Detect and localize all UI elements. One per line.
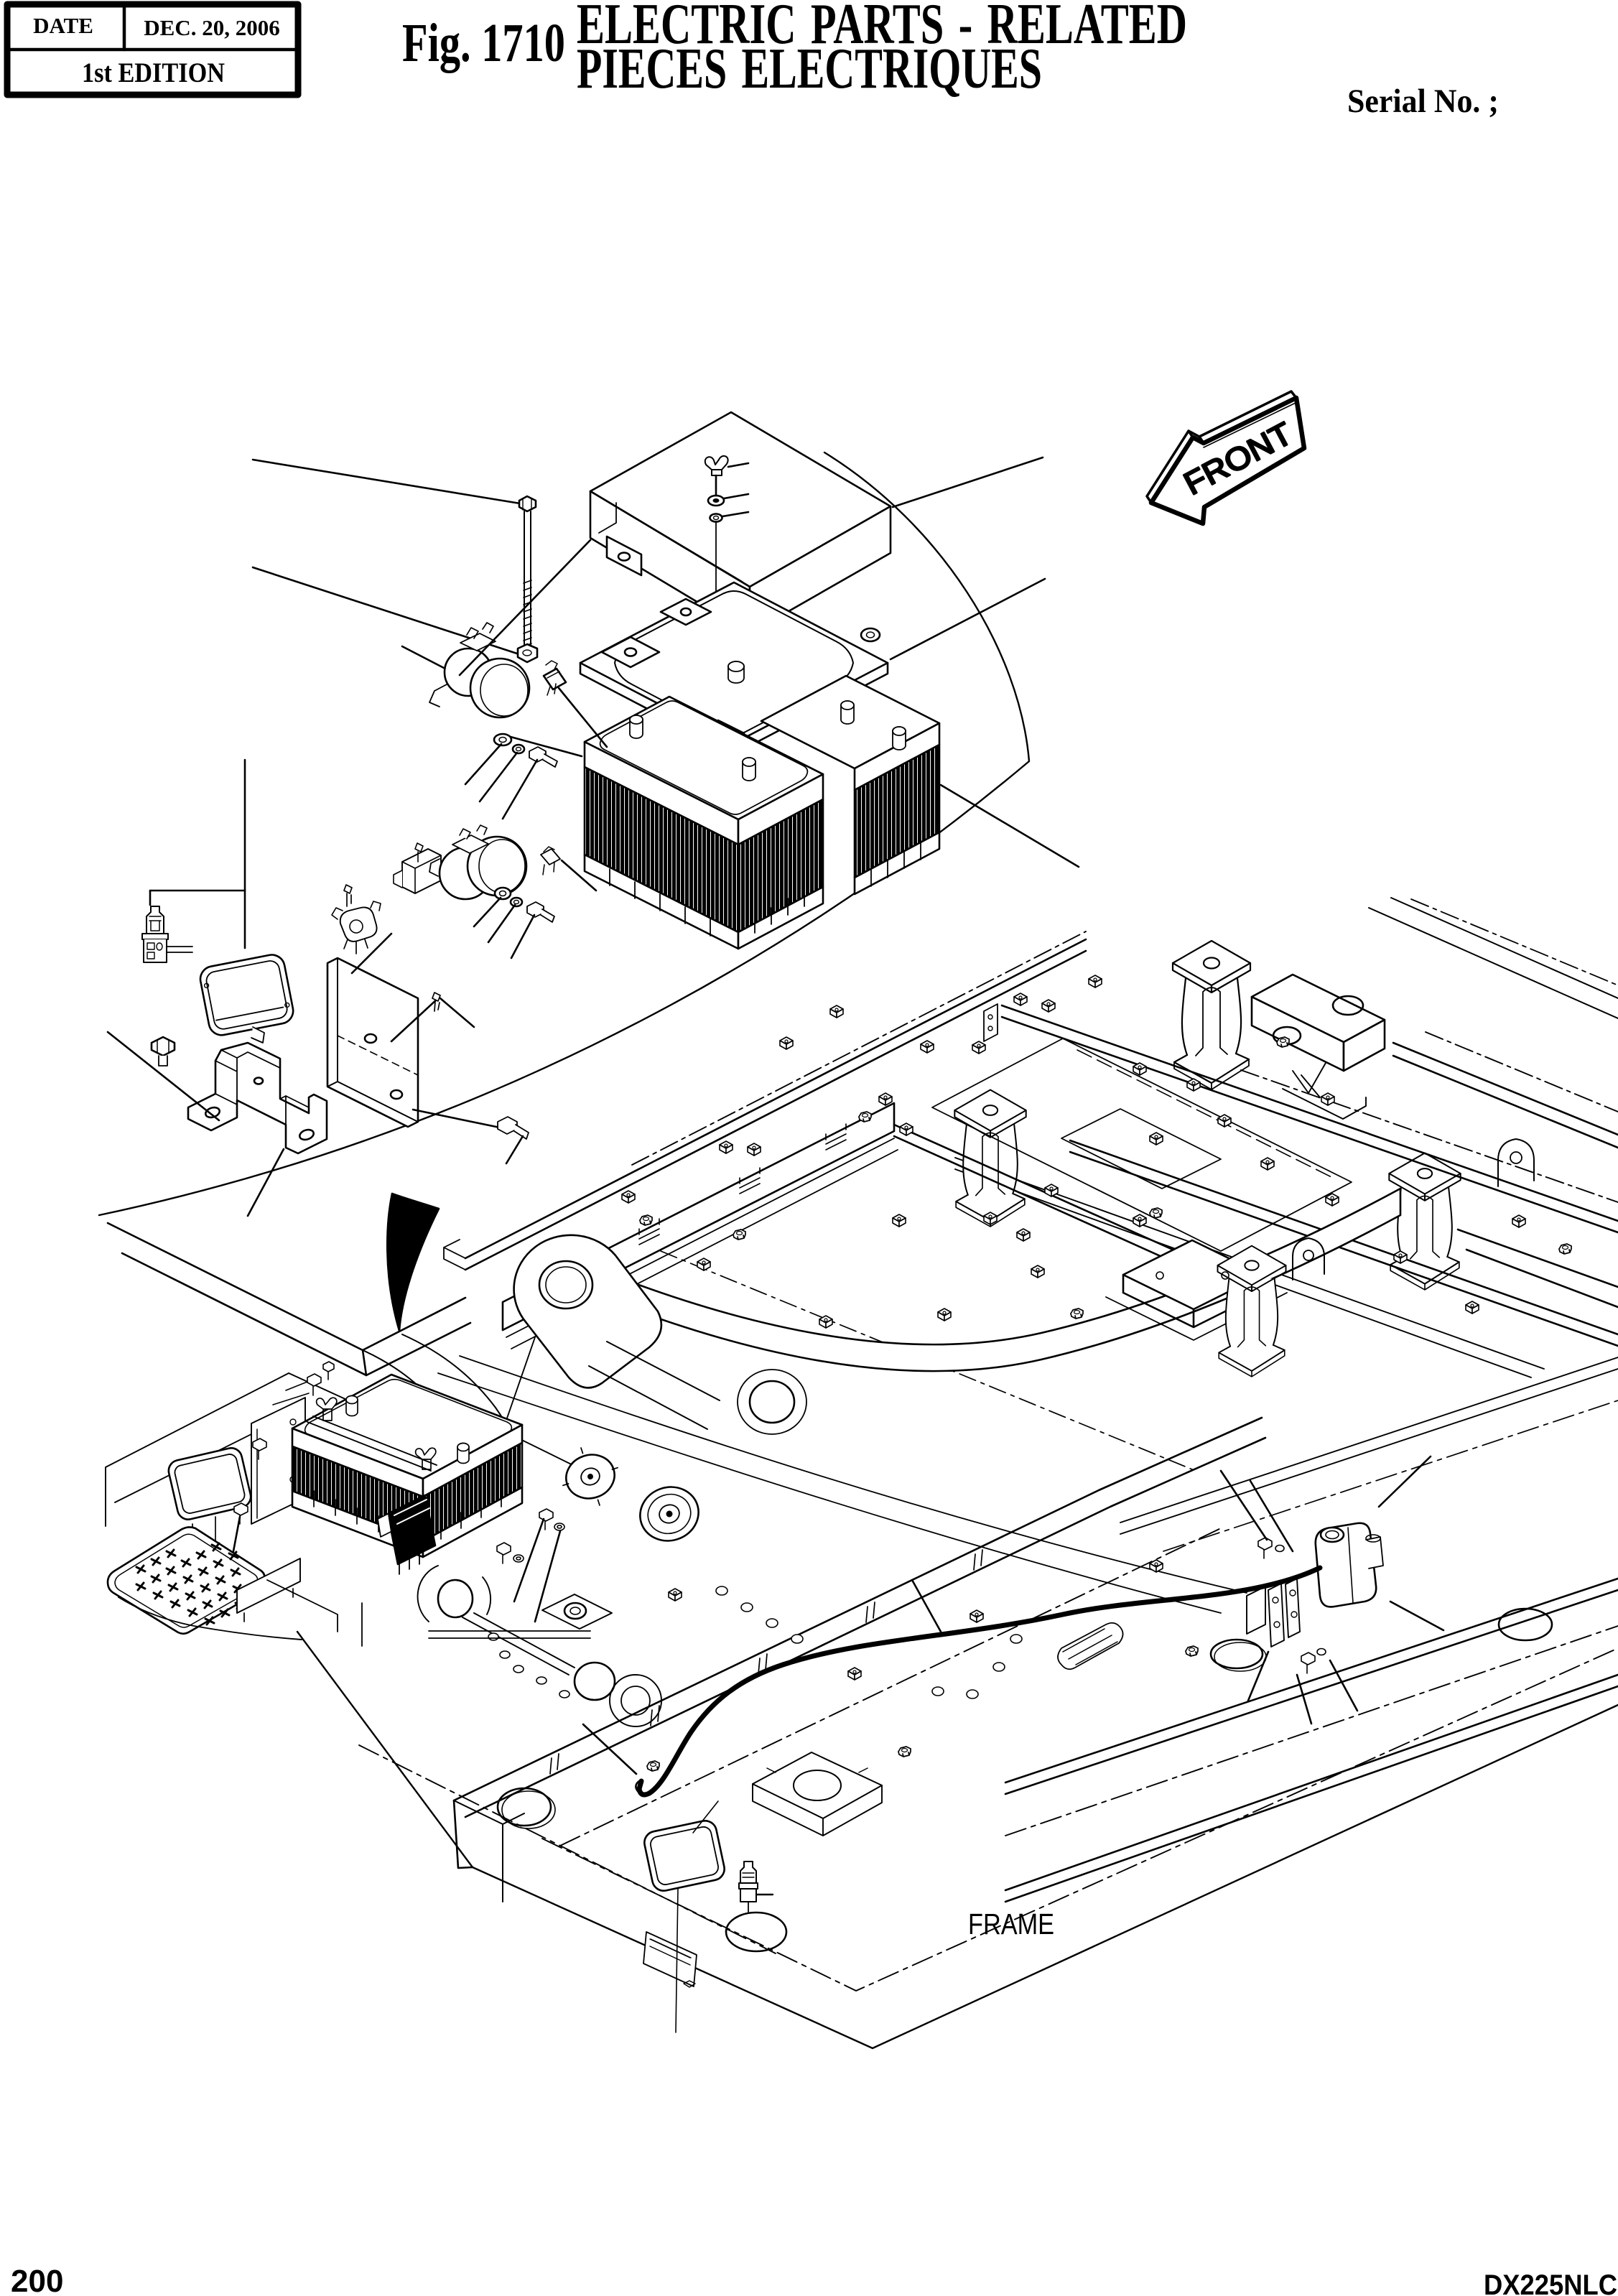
svg-text:200: 200	[11, 2264, 63, 2296]
svg-text:DATE: DATE	[33, 13, 93, 38]
svg-text:Fig. 1710: Fig. 1710	[402, 13, 565, 73]
svg-text:Serial No. ;: Serial No. ;	[1347, 83, 1499, 120]
svg-text:FRAME: FRAME	[968, 1907, 1054, 1941]
svg-text:1st EDITION: 1st EDITION	[82, 57, 225, 88]
svg-text:PIECES ELECTRIQUES: PIECES ELECTRIQUES	[577, 37, 1042, 101]
svg-text:DEC. 20, 2006: DEC. 20, 2006	[144, 15, 279, 40]
svg-text:DX225NLC: DX225NLC	[1484, 2269, 1617, 2296]
